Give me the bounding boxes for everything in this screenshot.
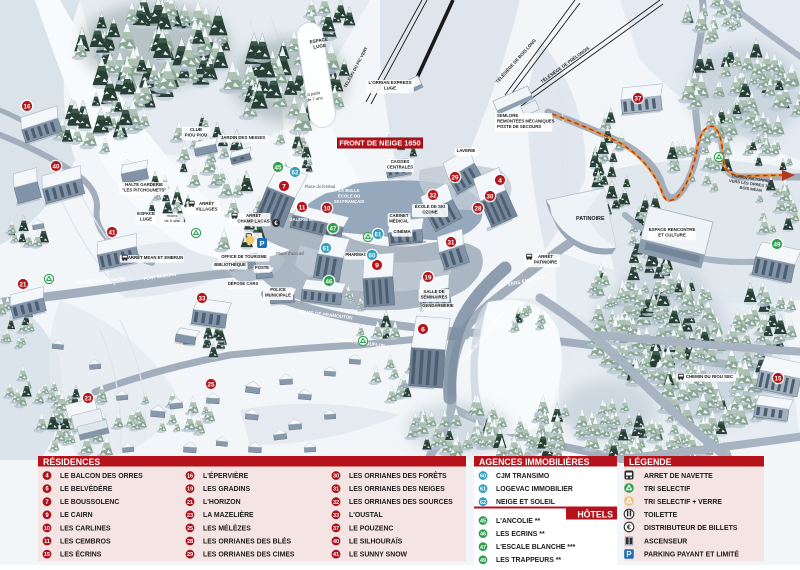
svg-text:MÉDICAL: MÉDICAL bbox=[389, 219, 409, 224]
svg-text:L'ÉPERVIÈRE: L'ÉPERVIÈRE bbox=[203, 471, 249, 480]
svg-text:LES MÉLÈZES: LES MÉLÈZES bbox=[203, 523, 251, 532]
svg-text:LÉGENDE: LÉGENDE bbox=[629, 457, 672, 467]
svg-text:40: 40 bbox=[333, 539, 339, 545]
svg-text:60: 60 bbox=[369, 252, 376, 259]
svg-text:RÉSIDENCES: RÉSIDENCES bbox=[43, 457, 100, 467]
svg-text:16: 16 bbox=[187, 474, 193, 480]
svg-text:40: 40 bbox=[53, 163, 60, 170]
svg-text:TRI SELECTIF + VERRE: TRI SELECTIF + VERRE bbox=[644, 499, 722, 506]
svg-text:LOGEVAC IMMOBILIER: LOGEVAC IMMOBILIER bbox=[496, 486, 573, 493]
svg-text:46: 46 bbox=[480, 532, 486, 538]
svg-text:OZONE: OZONE bbox=[422, 210, 437, 215]
svg-text:ARRET DE NAVETTE: ARRET DE NAVETTE bbox=[644, 473, 713, 480]
svg-text:32: 32 bbox=[333, 500, 339, 506]
svg-text:LES ÉCRINS: LES ÉCRINS bbox=[60, 550, 102, 559]
svg-text:LE SUNNY SNOW: LE SUNNY SNOW bbox=[349, 552, 408, 559]
svg-text:10: 10 bbox=[324, 205, 331, 212]
svg-text:ÉCOLE DU: ÉCOLE DU bbox=[338, 194, 360, 199]
svg-text:15: 15 bbox=[44, 552, 50, 558]
svg-text:ÉCOLE DE SKI: ÉCOLE DE SKI bbox=[415, 204, 445, 209]
svg-text:19: 19 bbox=[187, 487, 193, 493]
svg-text:POSTE DE SECOURS: POSTE DE SECOURS bbox=[497, 124, 541, 129]
svg-text:11: 11 bbox=[44, 539, 50, 545]
svg-text:VILLAGES: VILLAGES bbox=[196, 207, 218, 212]
svg-text:ASCENSEUR: ASCENSEUR bbox=[644, 538, 687, 545]
svg-text:JARDIN DES NEIGES: JARDIN DES NEIGES bbox=[221, 135, 265, 140]
svg-text:LES ECRINS **: LES ECRINS ** bbox=[496, 531, 545, 538]
svg-text:49: 49 bbox=[480, 558, 486, 564]
svg-text:45: 45 bbox=[480, 519, 486, 525]
svg-text:MUNICIPALE: MUNICIPALE bbox=[265, 292, 291, 297]
svg-text:CAISSES: CAISSES bbox=[391, 159, 410, 164]
svg-text:ET CULTURE: ET CULTURE bbox=[658, 233, 686, 238]
svg-text:POSTE: POSTE bbox=[255, 265, 269, 270]
svg-text:TRI SELECTIF: TRI SELECTIF bbox=[644, 486, 690, 493]
svg-text:L'ESCALE BLANCHE ***: L'ESCALE BLANCHE *** bbox=[496, 544, 576, 551]
svg-text:LES CEMBROS: LES CEMBROS bbox=[60, 538, 111, 545]
svg-text:OFFICE DE TOURISME: OFFICE DE TOURISME bbox=[221, 254, 267, 259]
svg-text:21: 21 bbox=[187, 500, 193, 506]
svg-text:49: 49 bbox=[774, 241, 781, 248]
svg-text:LES ORRIANES DES NEIGES: LES ORRIANES DES NEIGES bbox=[349, 486, 445, 493]
svg-text:47: 47 bbox=[480, 545, 486, 551]
svg-text:41: 41 bbox=[109, 229, 116, 236]
svg-text:P: P bbox=[626, 550, 631, 559]
svg-text:LES ORRIANES DES CIMES: LES ORRIANES DES CIMES bbox=[203, 552, 295, 559]
svg-text:NEIGE ET SOLEIL: NEIGE ET SOLEIL bbox=[496, 499, 555, 506]
svg-text:62: 62 bbox=[480, 500, 486, 506]
svg-text:CJM TRANSIMO: CJM TRANSIMO bbox=[496, 473, 550, 480]
svg-text:POLICE: POLICE bbox=[270, 287, 286, 292]
svg-text:16: 16 bbox=[24, 103, 31, 110]
svg-text:PATINOIRE: PATINOIRE bbox=[576, 216, 605, 222]
svg-text:ARRÊT: ARRÊT bbox=[538, 254, 553, 259]
svg-text:29: 29 bbox=[187, 552, 193, 558]
svg-text:L'ANCOLIE **: L'ANCOLIE ** bbox=[496, 518, 540, 525]
svg-text:L'HORIZON: L'HORIZON bbox=[203, 499, 241, 506]
svg-text:CLUB: CLUB bbox=[190, 127, 202, 132]
svg-text:37: 37 bbox=[333, 526, 339, 532]
svg-text:LA MAZELIÈRE: LA MAZELIÈRE bbox=[203, 510, 254, 519]
svg-text:SÉMINAIRES: SÉMINAIRES bbox=[421, 295, 448, 300]
svg-text:45: 45 bbox=[275, 164, 282, 171]
svg-text:30: 30 bbox=[333, 474, 339, 480]
svg-text:37: 37 bbox=[635, 95, 642, 102]
svg-text:LE BALCON DES ORRES: LE BALCON DES ORRES bbox=[60, 473, 143, 480]
svg-text:CHAMP LACAS: CHAMP LACAS bbox=[237, 219, 269, 224]
svg-text:ARRÊT MEAN ET EMBRUN: ARRÊT MEAN ET EMBRUN bbox=[128, 255, 183, 260]
svg-text:AGENCES IMMOBILIÈRES: AGENCES IMMOBILIÈRES bbox=[479, 457, 590, 467]
svg-text:LE CAIRN: LE CAIRN bbox=[60, 512, 93, 519]
svg-text:6: 6 bbox=[421, 326, 425, 333]
svg-text:GENDARMERIE: GENDARMERIE bbox=[422, 303, 454, 308]
svg-text:11: 11 bbox=[299, 204, 306, 211]
svg-text:P: P bbox=[259, 239, 264, 248]
svg-text:25: 25 bbox=[187, 526, 193, 532]
svg-text:15: 15 bbox=[775, 375, 782, 382]
svg-text:4: 4 bbox=[498, 177, 502, 184]
svg-text:61: 61 bbox=[480, 487, 486, 493]
svg-text:LES ORRIANES DES FORÊTS: LES ORRIANES DES FORÊTS bbox=[349, 471, 447, 480]
svg-text:HALTE GARDERIE: HALTE GARDERIE bbox=[125, 182, 163, 187]
svg-text:LES GRADINS: LES GRADINS bbox=[203, 486, 250, 493]
svg-text:41: 41 bbox=[333, 552, 339, 558]
svg-text:28: 28 bbox=[187, 539, 193, 545]
svg-text:PATINOIRE: PATINOIRE bbox=[534, 260, 557, 265]
svg-text:TOILETTE: TOILETTE bbox=[644, 512, 678, 519]
svg-text:30: 30 bbox=[487, 193, 494, 200]
svg-text:LES ORRIANES DES SOURCES: LES ORRIANES DES SOURCES bbox=[349, 499, 453, 506]
svg-text:19: 19 bbox=[425, 274, 432, 281]
svg-text:DISTRIBUTEUR DE BILLETS: DISTRIBUTEUR DE BILLETS bbox=[644, 525, 738, 532]
svg-text:LE SILHOURAÏS: LE SILHOURAÏS bbox=[349, 537, 403, 545]
svg-text:SALLE DE: SALLE DE bbox=[423, 289, 444, 294]
svg-text:33: 33 bbox=[199, 295, 206, 302]
svg-text:"LES PITCHOUNETS": "LES PITCHOUNETS" bbox=[122, 188, 166, 193]
svg-text:SKI FRANÇAIS: SKI FRANÇAIS bbox=[334, 199, 365, 204]
svg-text:LES TRAPPEURS **: LES TRAPPEURS ** bbox=[496, 557, 561, 564]
svg-text:L'OUSTAL: L'OUSTAL bbox=[349, 512, 383, 519]
svg-text:ESPACE RENCONTRE: ESPACE RENCONTRE bbox=[649, 227, 696, 232]
svg-text:61: 61 bbox=[323, 245, 330, 252]
svg-text:62: 62 bbox=[292, 169, 299, 176]
svg-text:47: 47 bbox=[330, 225, 337, 232]
svg-text:33: 33 bbox=[333, 513, 339, 519]
svg-text:31: 31 bbox=[333, 487, 339, 493]
svg-text:23: 23 bbox=[85, 395, 92, 402]
svg-text:BIBLIOTHÈQUE: BIBLIOTHÈQUE bbox=[214, 262, 246, 267]
svg-text:de 6 ans: de 6 ans bbox=[164, 218, 179, 223]
svg-text:ESPACE: ESPACE bbox=[137, 211, 155, 216]
svg-text:ARRÊT: ARRÊT bbox=[246, 213, 261, 218]
svg-text:DÉPOSE CARS: DÉPOSE CARS bbox=[228, 281, 259, 286]
svg-text:GALERIE MARCHANDE: GALERIE MARCHANDE bbox=[289, 217, 336, 222]
svg-text:60: 60 bbox=[480, 474, 486, 480]
svg-text:L'ORRIAN EXPRESS: L'ORRIAN EXPRESS bbox=[368, 80, 411, 85]
svg-text:SEMLORE: SEMLORE bbox=[497, 113, 518, 118]
svg-text:Place d'accueil: Place d'accueil bbox=[276, 251, 304, 256]
svg-text:9: 9 bbox=[375, 262, 379, 269]
svg-text:ARRÊT: ARRÊT bbox=[199, 201, 214, 206]
svg-text:10: 10 bbox=[44, 526, 50, 532]
svg-text:32: 32 bbox=[430, 192, 437, 199]
svg-text:7: 7 bbox=[282, 183, 286, 190]
svg-text:HÔTELS: HÔTELS bbox=[577, 509, 613, 520]
svg-text:LE BELVÉDÈRE: LE BELVÉDÈRE bbox=[60, 484, 113, 493]
svg-text:REMONTÉES MÉCANIQUES: REMONTÉES MÉCANIQUES bbox=[497, 119, 555, 124]
svg-text:LA BULLE: LA BULLE bbox=[338, 188, 359, 193]
svg-text:LES CARLINES: LES CARLINES bbox=[60, 525, 111, 532]
svg-text:LE BOUSSOLENC: LE BOUSSOLENC bbox=[60, 499, 119, 506]
svg-text:23: 23 bbox=[187, 513, 193, 519]
svg-text:Place du festival: Place du festival bbox=[305, 184, 336, 189]
svg-text:29: 29 bbox=[452, 174, 459, 181]
svg-text:Place Émile Hodoul: Place Émile Hodoul bbox=[391, 239, 426, 244]
svg-text:CABINET: CABINET bbox=[389, 213, 408, 218]
svg-text:FRONT DE NEIGE 1650: FRONT DE NEIGE 1650 bbox=[339, 139, 420, 148]
svg-text:LAVERIE: LAVERIE bbox=[457, 148, 476, 153]
svg-text:LES ORRIANES DES BLÉS: LES ORRIANES DES BLÉS bbox=[203, 536, 291, 545]
svg-text:LE POUZENC: LE POUZENC bbox=[349, 525, 393, 532]
svg-text:LUGE: LUGE bbox=[140, 217, 152, 222]
svg-text:CHEMIN DU RIOU SEC: CHEMIN DU RIOU SEC bbox=[686, 374, 734, 379]
svg-text:PARKING PAYANT ET LIMITÉ: PARKING PAYANT ET LIMITÉ bbox=[644, 549, 739, 558]
svg-text:28: 28 bbox=[475, 205, 482, 212]
svg-text:31: 31 bbox=[448, 239, 455, 246]
svg-text:46: 46 bbox=[326, 278, 333, 285]
svg-text:CENTRALES: CENTRALES bbox=[387, 165, 413, 170]
svg-text:21: 21 bbox=[20, 281, 27, 288]
svg-text:LUGE: LUGE bbox=[384, 86, 396, 91]
svg-text:CINÉMA: CINÉMA bbox=[393, 229, 411, 234]
svg-text:PIOU PIOU: PIOU PIOU bbox=[185, 133, 208, 138]
svg-text:25: 25 bbox=[208, 381, 215, 388]
svg-text:61: 61 bbox=[375, 231, 382, 238]
